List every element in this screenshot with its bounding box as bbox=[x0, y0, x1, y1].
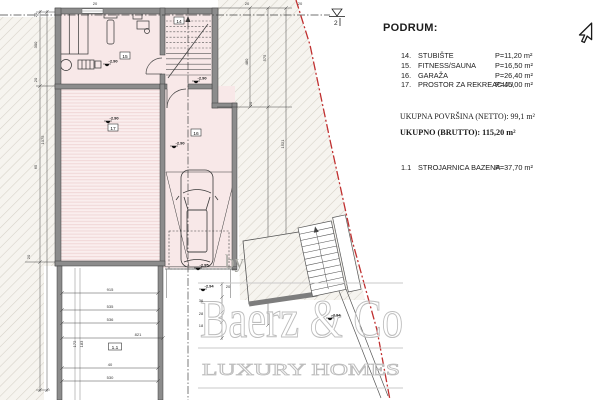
section-marker: 2 bbox=[329, 9, 345, 27]
dimension-label: 20 bbox=[298, 1, 303, 6]
dimension-label: 28 bbox=[199, 311, 204, 316]
dimension-label: 36 bbox=[199, 298, 204, 303]
room-recreation bbox=[58, 86, 163, 263]
room-number: 15. bbox=[401, 61, 418, 71]
elevation-value: -2.90 bbox=[109, 59, 119, 64]
elevation-value: -2.94 bbox=[205, 284, 215, 289]
elevation-value: -2.95 bbox=[200, 263, 210, 268]
room-area: P=37,70 m² bbox=[495, 163, 533, 172]
dimension-label: 536 bbox=[107, 317, 114, 322]
watermark-by: by bbox=[225, 252, 245, 273]
room-area: P=45,00 m² bbox=[495, 80, 533, 90]
room-number-label: 16 bbox=[193, 131, 199, 137]
room-number: 14. bbox=[401, 51, 418, 61]
legend-row: 14. STUBIŠTE P=11,20 m² bbox=[401, 51, 533, 61]
watermark-brand: Baerz & Co bbox=[200, 289, 403, 349]
window bbox=[82, 9, 103, 13]
cursor-icon bbox=[576, 22, 594, 44]
elevation-value: -2.94 bbox=[332, 313, 342, 318]
legend-netto-total: UKUPNA POVRŠINA (NETTO): 99,1 m² bbox=[400, 112, 535, 121]
room-name: STUBIŠTE bbox=[418, 51, 495, 61]
dimension-label: 20 bbox=[93, 1, 98, 6]
dimension-label: 915 bbox=[107, 287, 114, 292]
room-area: P=11,20 m² bbox=[495, 51, 533, 61]
dimension-label: 575 bbox=[262, 54, 267, 61]
legend-row: 15. FITNESS/SAUNA P=16,50 m² bbox=[401, 61, 533, 71]
room-name: PROSTOR ZA REKREACIJU bbox=[418, 80, 495, 90]
room-garage bbox=[162, 86, 235, 268]
room-fitness-sauna bbox=[58, 11, 163, 87]
dimension-label: 18 bbox=[199, 323, 204, 328]
legend-brutto-total: UKUPNO (BRUTTO): 115,20 m² bbox=[400, 128, 516, 137]
room-name: FITNESS/SAUNA bbox=[418, 61, 495, 71]
legend-room-list: 14. STUBIŠTE P=11,20 m² 15. FITNESS/SAUN… bbox=[401, 51, 533, 90]
room-name: GARAŽA bbox=[418, 71, 495, 81]
watermark-tagline: LUXURY HOMES bbox=[202, 360, 400, 379]
room-number: 1.1 bbox=[401, 163, 418, 172]
elevation-symbol bbox=[196, 268, 200, 270]
room-area: P=16,50 m² bbox=[495, 61, 533, 71]
dimension-label: 183 bbox=[79, 340, 84, 347]
dimension-label: 821 bbox=[135, 332, 142, 337]
legend-heading: PODRUM: bbox=[383, 22, 438, 34]
dimension-label: 172 bbox=[72, 340, 77, 347]
room-number-label: 15 bbox=[122, 54, 128, 60]
dimension-label: 300 bbox=[33, 41, 38, 48]
dimension-label: 480 bbox=[244, 58, 249, 65]
dimension-label: 535 bbox=[107, 304, 114, 309]
elevation-value: -2.90 bbox=[110, 116, 120, 121]
legend-pool-room-row: 1.1 STROJARNICA BAZENA P=37,70 m² bbox=[401, 163, 533, 172]
room-area: P=26,40 m² bbox=[495, 71, 533, 81]
dimension-label: 1075 bbox=[40, 135, 45, 145]
elevation-value: -2.90 bbox=[198, 76, 208, 81]
section-number: 2 bbox=[334, 20, 338, 27]
dimension-label: 20 bbox=[248, 101, 253, 106]
room-number-label: 14 bbox=[176, 19, 182, 25]
legend-row: 17. PROSTOR ZA REKREACIJU P=45,00 m² bbox=[401, 80, 533, 90]
dimension-label: 1521 bbox=[280, 139, 285, 149]
room-number-label: 1.1 bbox=[112, 345, 119, 351]
room-number: 17. bbox=[401, 80, 418, 90]
room-number: 16. bbox=[401, 71, 418, 81]
dimension-label: 40 bbox=[108, 362, 113, 367]
room-name: STROJARNICA BAZENA bbox=[418, 163, 495, 172]
dimension-label: 20 bbox=[26, 254, 31, 259]
floor-plan-page: 2 by Baerz & Co LUXURY HOMES 2030020 bbox=[0, 0, 600, 400]
dimension-label: 20 bbox=[33, 12, 38, 17]
legend-row: 16. GARAŽA P=26,40 m² bbox=[401, 71, 533, 81]
dimension-label: 20 bbox=[33, 77, 38, 82]
dimension-label: 20 bbox=[226, 284, 231, 289]
elevation-value: -2.90 bbox=[176, 141, 186, 146]
dimension-label: 65 bbox=[33, 164, 38, 169]
dimension-label: 530 bbox=[107, 375, 114, 380]
dimension-label: 20 bbox=[245, 1, 250, 6]
room-number-label: 17 bbox=[110, 126, 116, 132]
